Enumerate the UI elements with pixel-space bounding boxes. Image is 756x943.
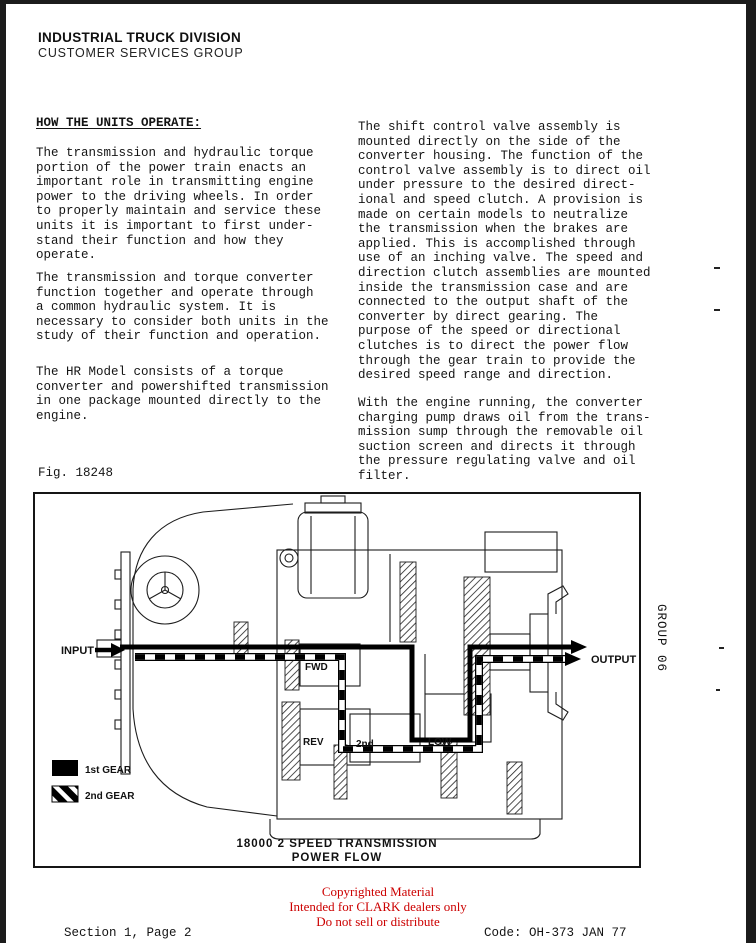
copyright-notice-line: Intended for CLARK dealers only [128,899,628,914]
figure-caption: 18000 2 SPEED TRANSMISSION POWER FLOW [236,838,437,864]
document-code-label: Code: OH-373 JAN 77 [484,926,627,941]
input-label: INPUT [61,645,94,657]
figure-number: Fig. 18248 [38,466,113,481]
scan-edge-left [0,0,6,943]
scan-tick-mark [714,309,720,311]
rev-label: REV [303,737,324,748]
copyright-notice: Copyrighted Material Intended for CLARK … [128,884,628,929]
paragraph-right-2: With the engine running, the converter c… [358,396,658,484]
paragraph-left-3: The HR Model consists of a torque conver… [36,365,348,423]
scan-tick-mark [714,267,720,269]
scan-edge-top [0,0,756,4]
group-subtitle: CUSTOMER SERVICES GROUP [38,46,243,60]
section-heading: HOW THE UNITS OPERATE: [36,116,201,131]
fwd-label: FWD [305,662,328,673]
caption-line-1: 18000 2 SPEED TRANSMISSION [236,838,437,850]
legend: 1st GEAR 2nd GEAR [52,760,135,802]
transmission-diagram: INPUT OUTPUT FWD REV 2nd LOW 1st GEAR 2n… [35,494,639,866]
transmission-figure: INPUT OUTPUT FWD REV 2nd LOW 1st GEAR 2n… [33,492,641,868]
page-section-label: Section 1, Page 2 [64,926,192,941]
group-06-vertical-label: GROUP 06 [654,604,668,672]
caption-line-2: POWER FLOW [292,852,383,864]
division-title: INDUSTRIAL TRUCK DIVISION [38,30,241,45]
2nd-label: 2nd [356,739,374,750]
output-label: OUTPUT [591,654,637,666]
paragraph-left-1: The transmission and hydraulic torque po… [36,146,348,263]
transmission-case-outline [97,496,568,839]
first-gear-swatch [52,760,78,776]
manual-page: INDUSTRIAL TRUCK DIVISION CUSTOMER SERVI… [0,0,756,943]
second-gear-legend-label: 2nd GEAR [85,791,135,802]
second-gear-flow-line [135,652,581,749]
first-gear-legend-label: 1st GEAR [85,765,132,776]
paragraph-right-1: The shift control valve assembly is moun… [358,120,658,383]
paragraph-left-2: The transmission and torque converter fu… [36,271,348,344]
scan-tick-mark [719,647,724,649]
low-label: LOW [428,737,452,748]
scan-tick-mark [716,689,720,691]
copyright-notice-line: Copyrighted Material [128,884,628,899]
second-gear-swatch [52,786,78,802]
scan-edge-right [746,0,756,943]
